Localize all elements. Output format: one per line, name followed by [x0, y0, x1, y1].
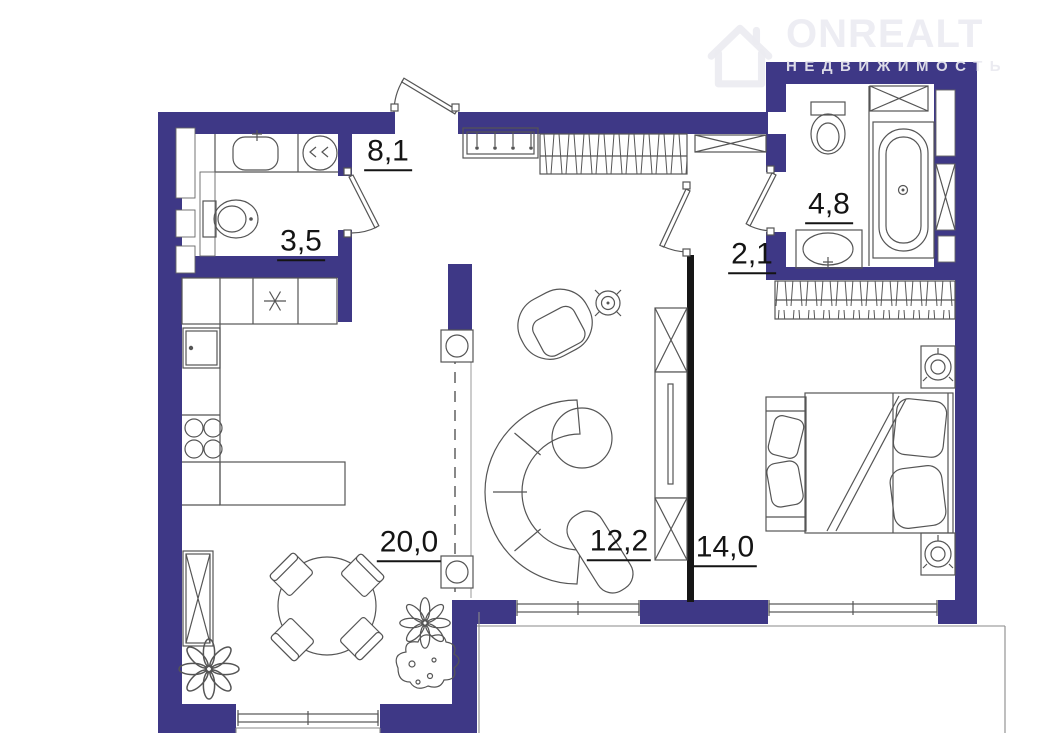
plant [400, 598, 450, 648]
armchair [507, 279, 602, 370]
bedroom [765, 281, 955, 575]
coffee-table [552, 408, 612, 468]
logo-subtitle-text: НЕДВИЖИМОСТЬ [786, 58, 1008, 75]
plant-bush [396, 635, 459, 688]
area-label-hallway: 8,1 [364, 135, 412, 171]
kitchen-sink [264, 292, 286, 311]
living-wardrobe [655, 308, 687, 560]
kitchen [179, 278, 459, 699]
hall-door [660, 182, 690, 256]
floorplan-page: 8,1 3,5 4,8 2,1 20,0 12,2 14,0 ONREALT Н… [0, 0, 1043, 733]
kitchen-window [238, 710, 378, 726]
nightstand [921, 346, 955, 388]
stove [185, 419, 222, 458]
bathroom-room [796, 86, 934, 268]
logo-brand-text: ONREALT [786, 14, 1008, 54]
fridge [183, 328, 220, 368]
nightstand [921, 533, 955, 575]
vestibule-shelf [695, 135, 766, 152]
bedroom-window [769, 600, 937, 616]
house-icon [704, 14, 776, 90]
glass-partition [441, 330, 473, 598]
bed [805, 393, 953, 533]
area-label-wc: 3,5 [277, 225, 325, 261]
plant [179, 639, 239, 699]
bedroom-wardrobe [775, 281, 955, 319]
living-room-window [517, 600, 639, 616]
windows [238, 600, 937, 726]
dining-table [269, 552, 385, 662]
ceiling-lamp-icon [595, 290, 621, 316]
entrance-door [391, 78, 459, 114]
washing-machine [303, 136, 337, 170]
bathtub [873, 122, 934, 258]
area-label-kitchen-dining: 20,0 [377, 526, 441, 562]
area-label-vestibule: 2,1 [728, 238, 776, 274]
bedroom-bench [765, 397, 806, 531]
area-label-living-room: 12,2 [587, 525, 651, 561]
bath-sink [796, 230, 862, 268]
floorplan-drawing [0, 0, 1043, 733]
bath-toilet [811, 102, 845, 154]
wc-door [344, 168, 379, 237]
kitchen-counter [182, 278, 345, 505]
tall-cabinet [183, 551, 213, 646]
hall-wardrobe [540, 134, 687, 174]
area-label-bedroom: 14,0 [693, 531, 757, 567]
wc-sink [233, 130, 278, 170]
bathroom-door [746, 166, 776, 235]
onrealt-logo: ONREALT НЕДВИЖИМОСТЬ [704, 14, 1008, 90]
sofa [485, 400, 639, 599]
coat-rack [463, 128, 538, 158]
area-label-bathroom: 4,8 [805, 188, 853, 224]
